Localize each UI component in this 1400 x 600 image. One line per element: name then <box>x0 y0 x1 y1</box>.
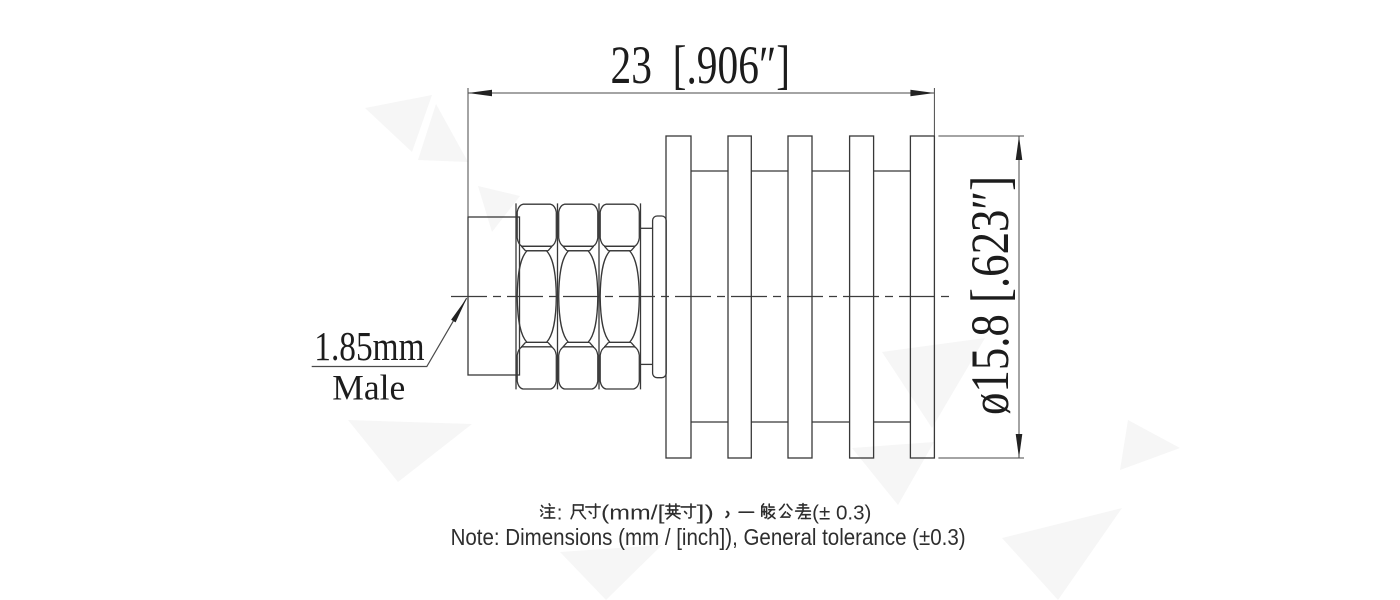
svg-text:23 [.906″]: 23 [.906″] <box>611 35 791 95</box>
svg-text::: : <box>557 501 563 524</box>
svg-text:(± 0.3): (± 0.3) <box>812 501 871 524</box>
svg-text:(mm/[: (mm/[ <box>601 501 665 524</box>
svg-text:Male: Male <box>332 368 405 408</box>
svg-text:1.85mm: 1.85mm <box>314 323 424 369</box>
svg-text:]): ]) <box>697 501 714 524</box>
svg-text:ø15.8 [.623″]: ø15.8 [.623″] <box>960 176 1020 415</box>
svg-text:Note: Dimensions (mm / [inch]): Note: Dimensions (mm / [inch]), General … <box>451 524 966 550</box>
